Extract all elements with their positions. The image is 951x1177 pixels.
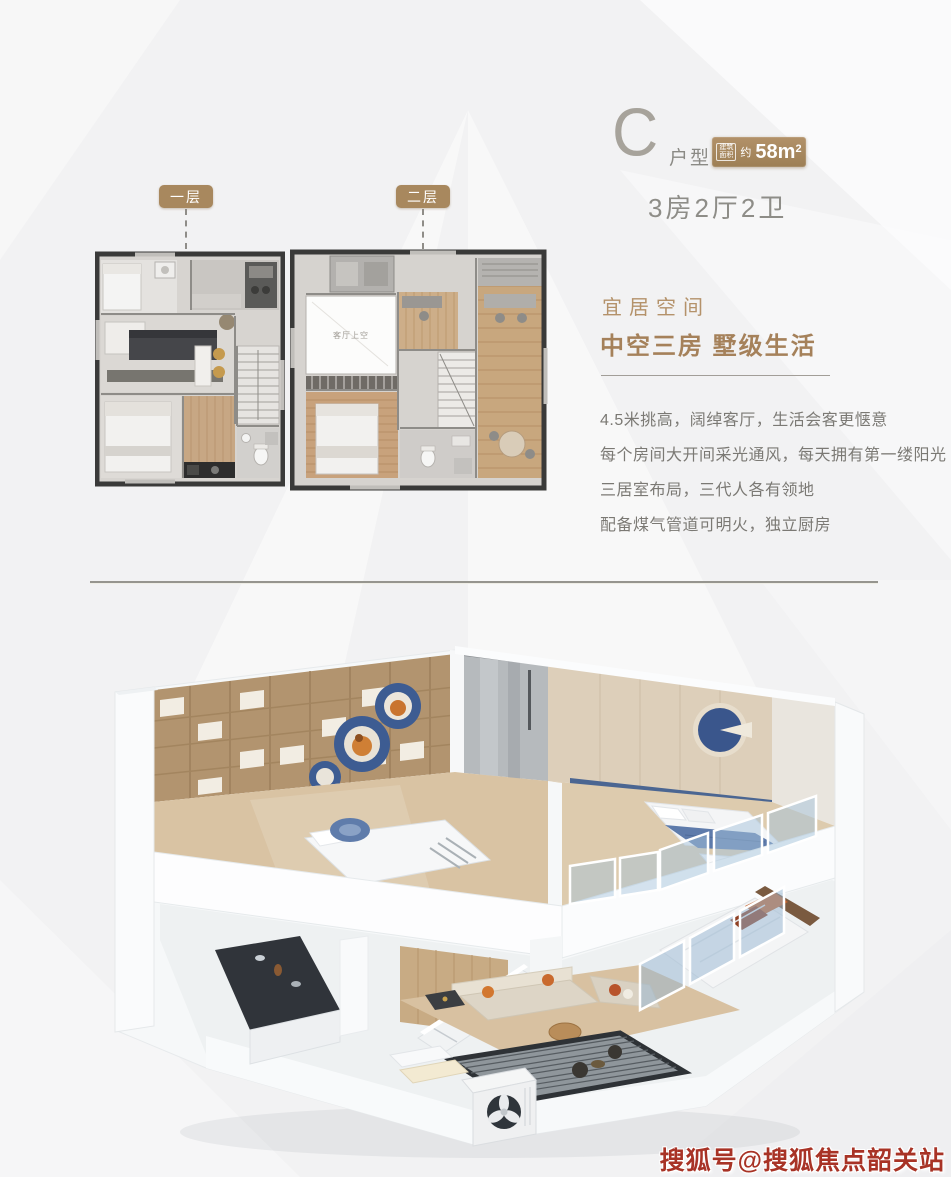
plan1-bathroom — [237, 428, 279, 478]
tab-connector-2 — [422, 209, 424, 249]
plan2-stairs — [438, 352, 476, 428]
unit-type-letter: C — [612, 98, 658, 166]
render-bathroom-glass — [464, 651, 548, 781]
area-approx: 约 — [740, 144, 751, 160]
plan2-kids-room — [398, 292, 458, 350]
floor-plan-second-floor — [290, 248, 548, 492]
area-badge: 建筑面积 约 58m2 — [712, 137, 806, 167]
plan1-wood-terrace — [183, 396, 235, 478]
unit-type-label: 户型 — [669, 143, 711, 170]
plan2-master-bedroom — [306, 392, 398, 478]
plan1-living-room — [101, 314, 235, 392]
plan1-top-left-bedroom — [101, 260, 177, 314]
feature-divider — [601, 375, 830, 376]
area-badge-caption: 建筑面积 — [716, 143, 736, 162]
tab-floor-2[interactable]: 二层 — [396, 185, 450, 208]
area-value: 58m2 — [755, 142, 801, 162]
feature-bullet-3: 三居室布局，三代人各有领地 — [600, 476, 815, 500]
plan2-utility — [330, 256, 394, 292]
tab-connector-1 — [185, 209, 187, 249]
page: C 户型 建筑面积 约 58m2 3房2厅2卫 一层 二层 — [0, 0, 951, 1177]
feature-bullet-2: 每个房间大开间采光通风，每天拥有第一缕阳光 — [600, 441, 947, 465]
feature-title: 中空三房 墅级生活 — [600, 326, 817, 361]
section-divider — [90, 581, 878, 584]
apartment-3d-render — [100, 640, 880, 1160]
tab-floor-1[interactable]: 一层 — [159, 185, 213, 208]
feature-subtitle: 宜居空间 — [602, 291, 710, 320]
rooms-summary: 3房2厅2卫 — [648, 188, 787, 225]
plan1-stairs — [237, 346, 279, 424]
plan1-bottom-bedroom — [101, 396, 181, 478]
plan2-void-label: 客厅上空 — [306, 330, 396, 341]
plan2-wardrobe — [306, 376, 398, 390]
feature-bullet-1: 4.5米挑高，阔绰客厅，生活会客更惬意 — [600, 406, 888, 430]
floor-plan-first-floor — [95, 250, 285, 488]
plan1-kitchen — [191, 260, 279, 310]
watermark: 搜狐号@搜狐焦点韶关站 — [660, 1141, 945, 1177]
plan2-study-room — [478, 258, 542, 478]
plan2-bathroom — [400, 430, 476, 478]
feature-bullet-4: 配备煤气管道可明火，独立厨房 — [600, 511, 831, 535]
